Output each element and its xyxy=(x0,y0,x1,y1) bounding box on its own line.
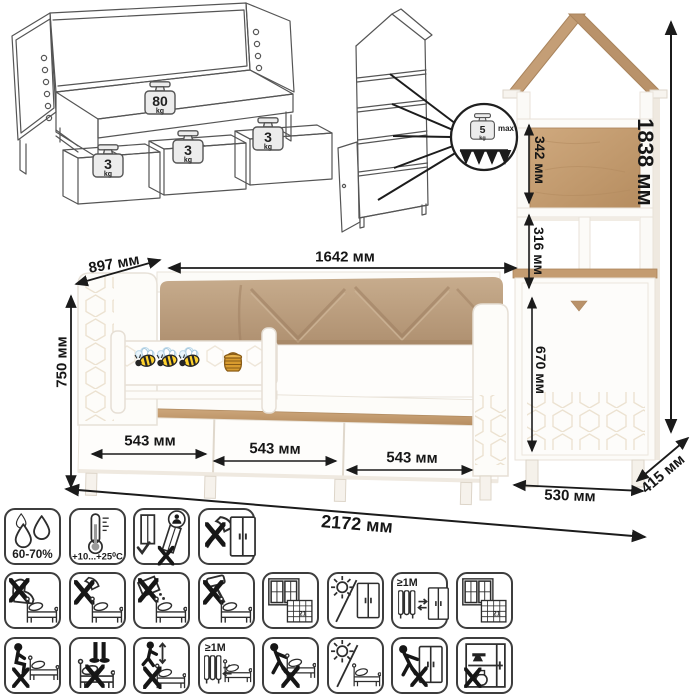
bed-glyph xyxy=(224,660,252,682)
temperature-icon: +10...+25⁰C xyxy=(69,508,126,565)
humidity-value: 60-70% xyxy=(12,548,53,561)
keep-1m-from-heater-bed-icon: ≥1М xyxy=(198,637,255,694)
bed-leg-2 xyxy=(204,476,216,498)
dim-label-750: 750 мм xyxy=(55,336,70,387)
calendar-glyph: 21 xyxy=(287,601,311,622)
spacing-arrows xyxy=(418,599,426,610)
no-dragging-bed-icon xyxy=(262,637,319,694)
door-honeycomb-pattern xyxy=(527,392,645,450)
drawer-load-badge-2: 3 kg xyxy=(173,131,203,164)
person-glyph xyxy=(143,641,156,665)
feet-glyph xyxy=(89,642,109,663)
up-down-arrow xyxy=(159,644,165,663)
radiator-glyph xyxy=(204,656,221,684)
wardrobe-glyph xyxy=(428,588,448,619)
bed-glyph xyxy=(29,656,59,680)
svg-text:3: 3 xyxy=(184,142,192,158)
cushions xyxy=(160,277,503,350)
bed-leg-4 xyxy=(460,482,472,504)
bed-glyph xyxy=(353,664,381,686)
dim-label-530: 530 мм xyxy=(544,488,596,505)
svg-text:max: max xyxy=(498,124,515,133)
person-glyph xyxy=(14,643,24,673)
no-dragging-wardrobe-icon xyxy=(391,637,448,694)
ventilate-room-wardrobe-icon: 21 xyxy=(456,572,513,629)
cabinet-divider xyxy=(579,217,590,269)
drawer-divider-1 xyxy=(213,419,214,475)
cabinet-leg-left xyxy=(526,460,538,487)
wardrobe-glyph xyxy=(357,583,379,617)
no-heavy-items-in-wardrobe-icon xyxy=(456,637,513,694)
dim-label-316: 316 мм xyxy=(532,227,546,275)
cabinet-mid-shelf xyxy=(517,208,653,217)
distance-label: ≥1М xyxy=(397,577,418,589)
wardrobe-glyph xyxy=(231,517,255,556)
bed-glyph xyxy=(155,597,187,622)
bed-glyph xyxy=(91,597,123,622)
distance-label: ≥1М xyxy=(205,642,226,654)
x-mark xyxy=(281,666,299,688)
no-jumping-on-bed-icon xyxy=(133,637,190,694)
slash-line xyxy=(336,580,356,622)
ventilate-room-bed-icon: 21 xyxy=(262,572,319,629)
radiator-glyph xyxy=(398,591,415,619)
calendar-day: 21 xyxy=(299,610,307,617)
dim-label-543-3: 543 мм xyxy=(386,450,438,466)
furniture-spec-sheet: 80 kg 3 kg 3 kg 3 kg xyxy=(0,0,694,700)
roof-right-beam xyxy=(569,14,665,96)
svg-text:kg: kg xyxy=(104,171,112,178)
no-sharp-tools-wardrobe-icon xyxy=(198,508,255,565)
calendar-glyph: 21 xyxy=(481,601,505,622)
dim-label-543-1: 543 мм xyxy=(124,434,175,449)
temperature-value: +10...+25⁰C xyxy=(72,551,123,562)
dim-label-670: 670 мм xyxy=(534,346,548,394)
rail-post-right xyxy=(262,328,276,413)
humidity-icon: 60-70% xyxy=(4,508,61,565)
bed-load-badge: 80 kg xyxy=(145,82,175,115)
cabinet-load-diagram: 5 kg max xyxy=(330,0,530,255)
dim-label-1838: 1838 мм xyxy=(634,118,656,206)
bed-leg-1 xyxy=(85,473,97,495)
svg-text:kg: kg xyxy=(264,144,272,151)
drawer-load-badge-3: 3 kg xyxy=(253,118,283,151)
x-mark xyxy=(12,668,29,688)
keep-1m-from-heater-wardrobe-icon: ≥1М xyxy=(391,572,448,629)
rail-post-left xyxy=(111,331,125,413)
calendar-day: 21 xyxy=(493,610,501,617)
dim-label-342: 342 мм xyxy=(533,136,547,184)
bed-render xyxy=(55,245,515,515)
rail-lower-slat xyxy=(113,391,277,399)
assemble-upright-icon xyxy=(133,508,190,565)
no-standing-on-bed-icon xyxy=(69,637,126,694)
no-shoes-on-bed-icon xyxy=(4,572,61,629)
dim-label-1642: 1642 мм xyxy=(315,250,375,265)
dim-label-2172: 2172 мм xyxy=(321,512,394,536)
bed-leg-3 xyxy=(334,479,346,501)
no-direct-sunlight-wardrobe-icon xyxy=(327,572,384,629)
svg-text:kg: kg xyxy=(184,157,192,164)
drawer-divider-2 xyxy=(343,422,344,478)
shelf-callout-lines xyxy=(378,74,457,200)
dim-label-543-2: 543 мм xyxy=(249,441,301,457)
no-axe-on-bed-icon xyxy=(69,572,126,629)
no-direct-sunlight-bed-icon xyxy=(327,637,384,694)
svg-text:3: 3 xyxy=(104,156,112,172)
no-spills-on-bed-icon xyxy=(133,572,190,629)
svg-text:kg: kg xyxy=(479,136,485,142)
footboard xyxy=(473,304,508,500)
svg-text:80: 80 xyxy=(152,93,168,109)
footboard-leg xyxy=(480,476,491,500)
wardrobe-glyph xyxy=(419,647,442,683)
no-hammer-on-bed-icon xyxy=(198,572,255,629)
svg-text:3: 3 xyxy=(264,129,272,145)
honey-pot-icon xyxy=(225,353,242,371)
no-sitting-on-bed-edge-icon xyxy=(4,637,61,694)
svg-text:5: 5 xyxy=(480,124,486,136)
bed-load-diagram: 80 kg 3 kg 3 kg 3 kg xyxy=(0,0,340,215)
x-mark xyxy=(205,522,225,546)
svg-text:kg: kg xyxy=(156,108,164,115)
